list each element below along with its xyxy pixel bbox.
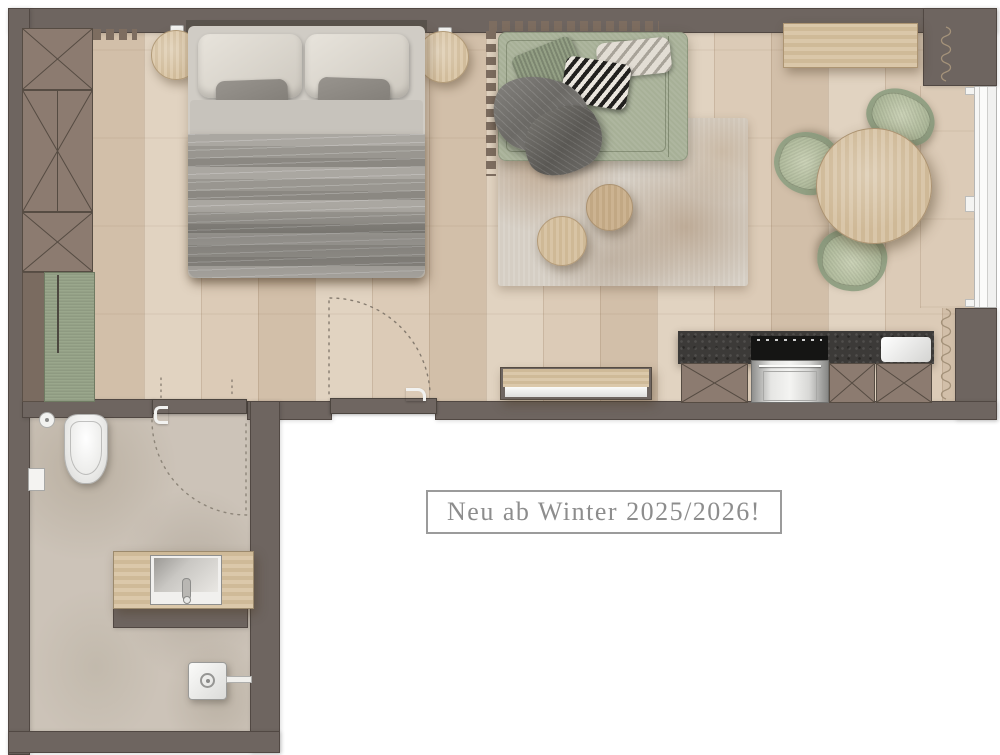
wall-bathroom-right — [250, 401, 280, 753]
wardrobe-door-middle — [22, 90, 93, 212]
wardrobe-door-bottom — [22, 212, 93, 272]
wardrobe — [22, 28, 93, 272]
window-handle-tick-middle — [965, 196, 975, 212]
announcement-text: Neu ab Winter 2025/2026! — [447, 497, 761, 527]
oven-handle — [759, 365, 821, 367]
coffee-table-small — [537, 216, 587, 266]
toilet-paper-core — [45, 418, 49, 422]
sofa-trim-horizontal — [489, 21, 659, 31]
base-cabinet-1 — [681, 363, 748, 403]
shower-handle-bar — [226, 676, 252, 683]
bathroom-door-handle — [154, 406, 168, 424]
dining-table — [816, 128, 932, 244]
entry-bench-front — [505, 387, 647, 397]
radiator-icon — [93, 29, 137, 40]
kitchen-sink — [881, 337, 931, 362]
wall-bottom-right-segment — [435, 401, 997, 420]
vanity-wall-stub — [113, 607, 248, 628]
base-cabinet-3 — [876, 363, 932, 403]
oven-door-outline — [763, 371, 817, 401]
coffee-table-large — [586, 184, 633, 231]
entry-bench — [500, 367, 652, 400]
niche-back-panel — [22, 272, 45, 402]
bed-blanket — [188, 134, 425, 278]
toilet — [64, 414, 108, 484]
shower-fixture — [188, 662, 227, 700]
wardrobe-door-top — [22, 28, 93, 90]
x-front-icon — [877, 364, 931, 402]
toilet-paper-holder-icon — [39, 412, 55, 428]
vanity-sink — [150, 555, 222, 605]
entry-door-handle — [406, 388, 426, 401]
sideboard — [783, 23, 918, 68]
wall-bathroom-bottom — [8, 731, 280, 753]
green-bench-seam — [57, 275, 59, 353]
wall-top-right-block — [923, 8, 997, 86]
x-front-icon — [682, 364, 747, 402]
wall-niche-box — [28, 468, 45, 491]
faucet-base — [183, 596, 191, 604]
floor-plan: Neu ab Winter 2025/2026! — [0, 0, 1000, 755]
entry-bench-top — [503, 369, 649, 387]
shower-drain-dot — [206, 679, 210, 683]
x-front-icon — [830, 364, 874, 402]
double-bed — [188, 26, 425, 278]
window-handle-tick-bottom — [965, 299, 975, 307]
cooktop-controls — [757, 339, 822, 341]
base-cabinet-2 — [829, 363, 875, 403]
window-icon — [974, 86, 997, 308]
green-bench — [44, 272, 95, 402]
toilet-seat-line — [70, 421, 102, 475]
x-front-icon — [23, 91, 92, 211]
cooktop — [751, 336, 828, 360]
announcement-label: Neu ab Winter 2025/2026! — [426, 490, 782, 534]
x-front-icon — [23, 29, 92, 89]
oven — [751, 360, 829, 403]
window-handle-tick-top — [965, 87, 975, 95]
x-front-icon — [23, 213, 92, 271]
